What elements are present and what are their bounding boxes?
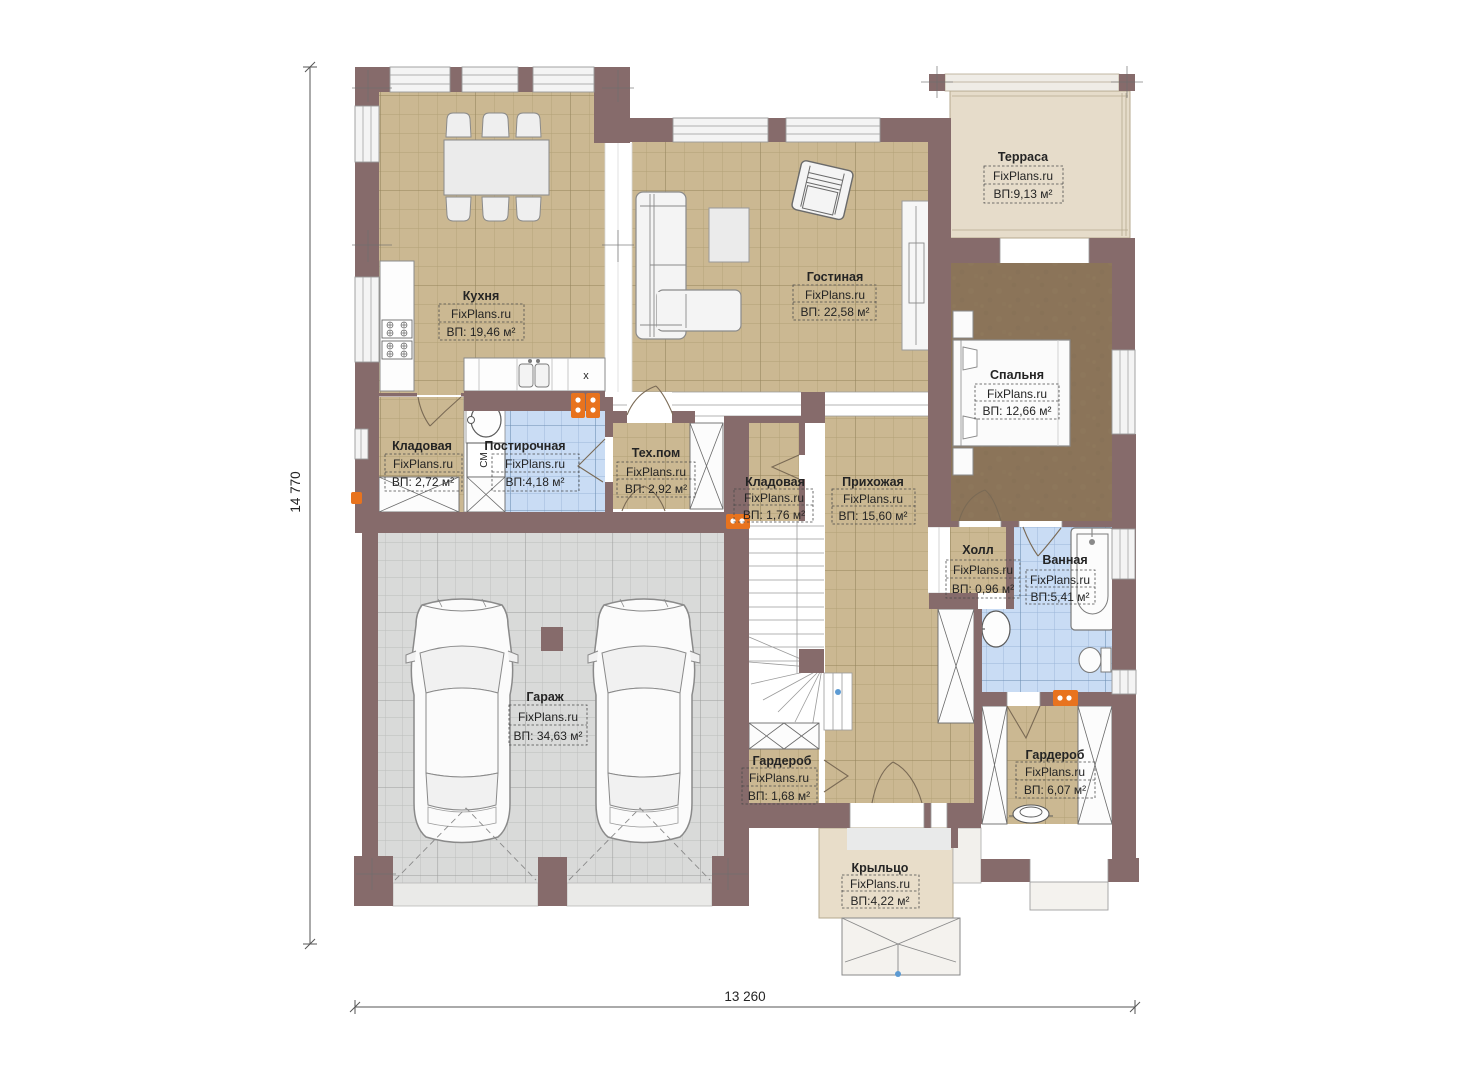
svg-text:Гардероб: Гардероб	[752, 754, 811, 768]
svg-text:Кладовая: Кладовая	[745, 475, 805, 489]
svg-text:ВП: 12,66 м²: ВП: 12,66 м²	[983, 404, 1052, 418]
svg-text:ВП:9,13 м²: ВП:9,13 м²	[994, 187, 1053, 201]
svg-text:ВП: 1,68 м²: ВП: 1,68 м²	[748, 789, 810, 803]
svg-text:ВП: 2,72 м²: ВП: 2,72 м²	[392, 475, 454, 489]
svg-text:ВП: 15,60 м²: ВП: 15,60 м²	[839, 509, 908, 523]
svg-text:ВП: 19,46 м²: ВП: 19,46 м²	[447, 325, 516, 339]
svg-text:FixPlans.ru: FixPlans.ru	[993, 169, 1053, 183]
svg-text:Холл: Холл	[962, 543, 993, 557]
svg-text:FixPlans.ru: FixPlans.ru	[843, 492, 903, 506]
svg-text:FixPlans.ru: FixPlans.ru	[953, 563, 1013, 577]
svg-text:Спальня: Спальня	[990, 368, 1044, 382]
svg-text:FixPlans.ru: FixPlans.ru	[850, 877, 910, 891]
svg-text:FixPlans.ru: FixPlans.ru	[505, 457, 565, 471]
svg-text:FixPlans.ru: FixPlans.ru	[626, 465, 686, 479]
svg-text:FixPlans.ru: FixPlans.ru	[744, 491, 804, 505]
svg-text:ВП: 2,92 м²: ВП: 2,92 м²	[625, 482, 687, 496]
svg-text:FixPlans.ru: FixPlans.ru	[393, 457, 453, 471]
svg-text:FixPlans.ru: FixPlans.ru	[805, 288, 865, 302]
svg-text:ВП: 22,58 м²: ВП: 22,58 м²	[801, 305, 870, 319]
svg-text:Терраса: Терраса	[998, 150, 1049, 164]
svg-text:Гостиная: Гостиная	[807, 270, 864, 284]
svg-text:Кухня: Кухня	[463, 289, 500, 303]
svg-text:ВП: 6,07 м²: ВП: 6,07 м²	[1024, 783, 1086, 797]
svg-text:14 770: 14 770	[288, 471, 303, 512]
svg-text:ВП: 34,63 м²: ВП: 34,63 м²	[514, 729, 583, 743]
svg-text:Крыльцо: Крыльцо	[852, 861, 909, 875]
svg-text:ВП:4,22 м²: ВП:4,22 м²	[851, 894, 910, 908]
svg-text:Тех.пом: Тех.пом	[632, 446, 681, 460]
svg-text:13 260: 13 260	[724, 989, 765, 1004]
svg-text:ВП: 1,76 м²: ВП: 1,76 м²	[743, 508, 805, 522]
svg-text:FixPlans.ru: FixPlans.ru	[1030, 573, 1090, 587]
svg-text:Постирочная: Постирочная	[484, 439, 565, 453]
svg-text:FixPlans.ru: FixPlans.ru	[749, 771, 809, 785]
svg-text:Прихожая: Прихожая	[842, 475, 904, 489]
svg-text:СМ: СМ	[479, 452, 490, 467]
svg-text:ВП:4,18 м²: ВП:4,18 м²	[506, 475, 565, 489]
svg-text:FixPlans.ru: FixPlans.ru	[987, 387, 1047, 401]
svg-text:Ванная: Ванная	[1042, 553, 1087, 567]
svg-text:FixPlans.ru: FixPlans.ru	[518, 710, 578, 724]
svg-text:ВП: 0,96 м²: ВП: 0,96 м²	[952, 582, 1014, 596]
svg-text:FixPlans.ru: FixPlans.ru	[1025, 765, 1085, 779]
svg-text:FixPlans.ru: FixPlans.ru	[451, 307, 511, 321]
svg-text:ВП:5,41 м²: ВП:5,41 м²	[1031, 590, 1090, 604]
svg-text:x: x	[583, 370, 589, 382]
svg-text:Гардероб: Гардероб	[1025, 748, 1084, 762]
svg-text:Кладовая: Кладовая	[392, 439, 452, 453]
svg-text:Гараж: Гараж	[526, 690, 563, 704]
